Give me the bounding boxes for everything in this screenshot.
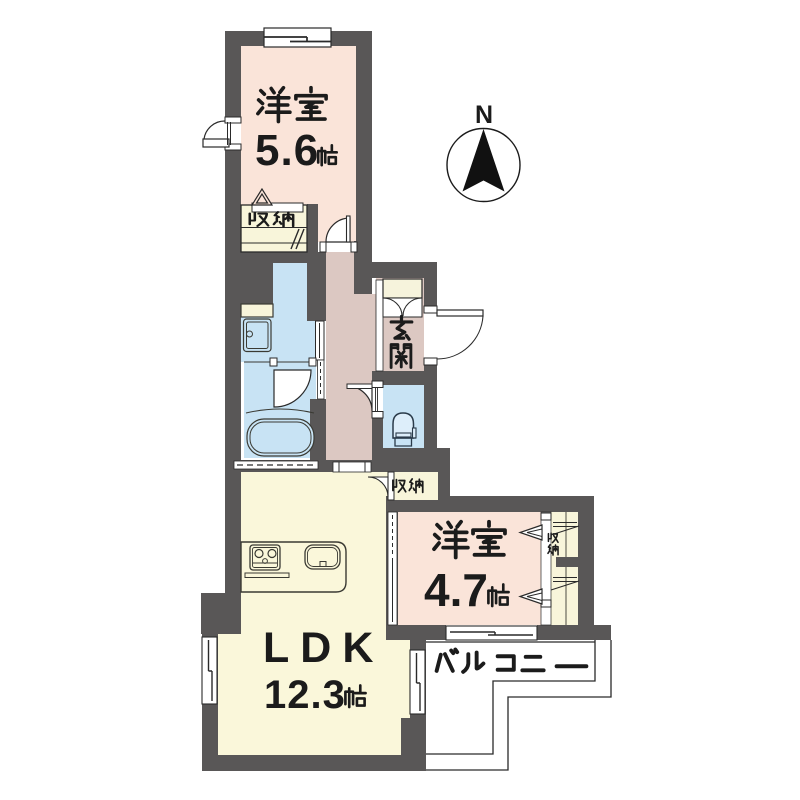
- svg-text:LDK: LDK: [263, 624, 384, 672]
- svg-text:N: N: [475, 101, 493, 129]
- svg-text:12.3: 12.3: [264, 673, 346, 717]
- svg-text:5.6: 5.6: [255, 126, 319, 175]
- svg-text:4.7: 4.7: [424, 564, 488, 616]
